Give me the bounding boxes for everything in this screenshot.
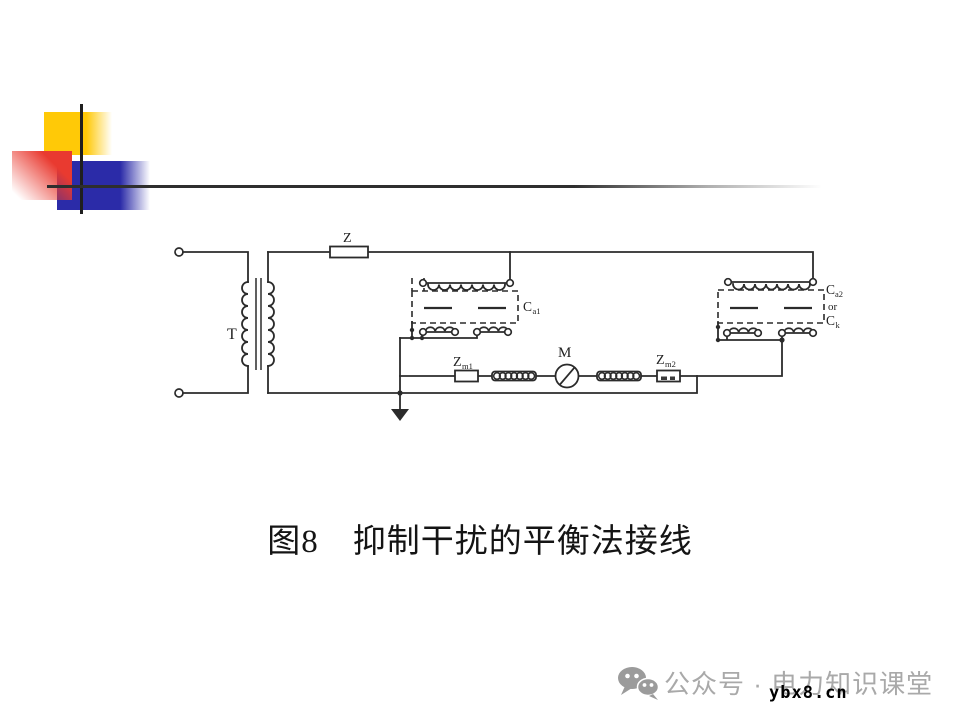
meter-m: M	[556, 345, 579, 388]
shield-cable-1	[492, 372, 536, 381]
zm1-label: Z	[453, 355, 462, 370]
cap2-label: C	[826, 282, 835, 297]
cap1-label: C	[523, 299, 532, 314]
zm1-resistor: Z m1	[453, 355, 478, 382]
cap-network-ca2: C a2 or C k	[718, 279, 843, 337]
transformer-label: T	[227, 326, 237, 343]
impedance-label: Z	[343, 231, 352, 246]
transformer-core	[256, 278, 261, 370]
cap1-label-sub: a1	[533, 306, 541, 316]
transformer: T	[183, 252, 274, 393]
cap2-or-label: or	[828, 301, 838, 313]
shield-cable-2	[597, 372, 641, 381]
zm2-resistor: Z m2	[656, 353, 680, 382]
meter-label: M	[558, 345, 571, 361]
ground-symbol	[391, 393, 409, 421]
input-terminals	[175, 248, 183, 397]
figure-caption: 图8 抑制干扰的平衡法接线	[0, 514, 960, 562]
cap2-alt-label: C	[826, 313, 835, 328]
cap2-alt-label-sub: k	[836, 320, 841, 330]
impedance-z: Z	[330, 231, 368, 258]
cap2-label-sub: a2	[835, 289, 843, 299]
watermark-url: ybx8.cn	[769, 683, 848, 703]
zm2-label: Z	[656, 353, 665, 368]
watermark: 公众号 · 电力知识课堂 ybx8.cn	[617, 662, 960, 714]
zm1-label-sub: m1	[462, 361, 473, 371]
circuit-diagram: T Z	[0, 0, 960, 720]
cap-network-ca1: C a1	[412, 278, 541, 335]
zm2-label-sub: m2	[665, 359, 676, 369]
wechat-icon	[617, 665, 661, 701]
